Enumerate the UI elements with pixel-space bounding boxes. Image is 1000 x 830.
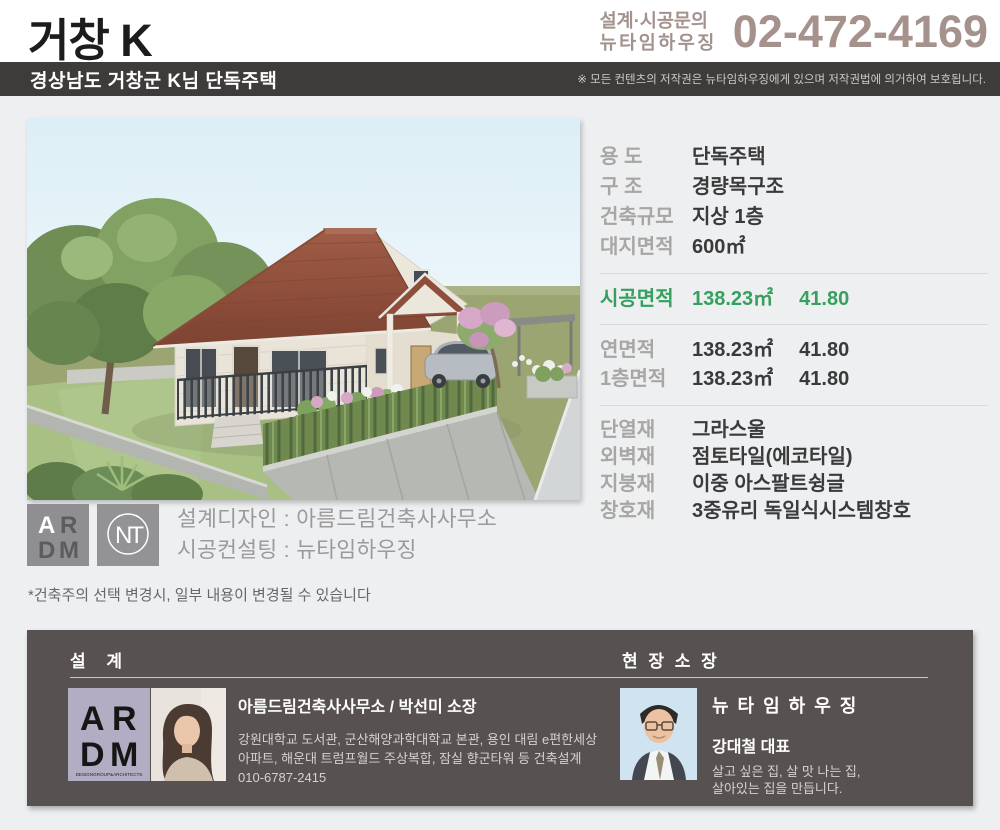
disclaimer-note: *건축주의 선택 변경시, 일부 내용이 변경될 수 있습니다 — [28, 584, 371, 605]
adm-logo-letter: D — [38, 537, 55, 564]
footer-panel: 설 계 현 장 소 장 A R D M DESIGNGROUP&ARCHITEC… — [27, 630, 973, 806]
spec-row: 용 도단독주택 — [600, 142, 988, 172]
divider — [600, 405, 988, 406]
contact-lines: 설계·시공문의 뉴타임하우징 — [600, 10, 717, 54]
page: 거창 K 설계·시공문의 뉴타임하우징 02-472-4169 경상남도 거창군… — [0, 0, 1000, 830]
adm-footer-logo: A R D M DESIGNGROUP&ARCHITECTS — [68, 688, 150, 781]
spec-label: 외벽재 — [600, 444, 692, 471]
spec-row: 1층면적138.23㎡41.80 — [600, 365, 988, 394]
spec-label: 시공면적 — [600, 285, 692, 313]
spec-label: 구 조 — [600, 172, 692, 202]
designer-text: 아름드림건축사사무소 / 박선미 소장 강원대학교 도서관, 군산해양과학대학교… — [238, 693, 608, 787]
spec-pyeong: 41.80 — [799, 336, 849, 365]
adm-logo-letter: R — [60, 512, 77, 539]
copyright-text: ※ 모든 컨텐츠의 저작권은 뉴타임하우징에게 있으며 저작권법에 의거하여 보… — [577, 71, 986, 87]
spec-value: 점토타일(에코타일) — [692, 444, 853, 471]
spec-pyeong: 41.80 — [799, 365, 849, 394]
manager-slogan-1: 살고 싶은 집, 살 맛 나는 집, — [712, 763, 962, 780]
credit-text: 설계디자인 : 아름드림건축사사무소 시공컨설팅 : 뉴타임하우징 — [177, 504, 497, 566]
credit-design-line: 설계디자인 : 아름드림건축사사무소 — [177, 504, 497, 535]
manager-text: 뉴 타 임 하 우 징 강대철 대표 살고 싶은 집, 살 맛 나는 집, 살아… — [712, 692, 962, 797]
divider — [600, 324, 988, 325]
spec-label: 1층면적 — [600, 365, 692, 394]
designer-desc-2: 아파트, 해운대 트럼프월드 주상복합, 잠실 향군타워 등 건축설계 — [238, 749, 608, 768]
designer-phone: 010-6787-2415 — [238, 768, 608, 787]
spec-label: 지붕재 — [600, 471, 692, 498]
manager-name: 강대철 대표 — [712, 733, 962, 757]
spec-materials-group: 단열재그라스울 외벽재점토타일(에코타일) 지붕재이중 아스팔트슁글 창호재3중… — [600, 417, 988, 525]
spec-value: 138.23㎡ — [692, 285, 773, 313]
spec-row: 지붕재이중 아스팔트슁글 — [600, 471, 988, 498]
section-underline — [70, 677, 928, 678]
spec-value: 단독주택 — [692, 142, 766, 172]
spec-row: 단열재그라스울 — [600, 417, 988, 444]
adm-logo-letter: R — [112, 700, 137, 738]
phone-number: 02-472-4169 — [733, 6, 988, 58]
spec-value: 이중 아스팔트슁글 — [692, 471, 845, 498]
spec-value: 3중유리 독일식시스템창호 — [692, 498, 911, 525]
contact-line-2: 뉴타임하우징 — [600, 32, 717, 54]
spec-row: 외벽재점토타일(에코타일) — [600, 444, 988, 471]
divider — [600, 273, 988, 274]
spec-value: 지상 1층 — [692, 202, 764, 232]
spec-label: 연면적 — [600, 336, 692, 365]
nt-logo: NT — [97, 504, 159, 566]
spec-row: 창호재3중유리 독일식시스템창호 — [600, 498, 988, 525]
nt-logo-monogram: NT — [115, 522, 144, 549]
spec-panel: 용 도단독주택 구 조경량목구조 건축규모지상 1층 대지면적600㎡ 시공면적… — [600, 142, 988, 525]
site-manager-heading: 현 장 소 장 — [622, 647, 720, 672]
spec-row: 건축규모지상 1층 — [600, 202, 988, 232]
spec-value: 600㎡ — [692, 232, 745, 262]
spec-pyeong: 41.80 — [799, 285, 849, 313]
adm-logo-caption: DESIGNGROUP&ARCHITECTS — [76, 772, 143, 777]
adm-logo-letter: M — [110, 736, 138, 774]
spec-basic-group: 용 도단독주택 구 조경량목구조 건축규모지상 1층 대지면적600㎡ — [600, 142, 988, 262]
house-rendering-svg — [27, 118, 580, 500]
manager-company: 뉴 타 임 하 우 징 — [712, 692, 962, 718]
house-rendering — [27, 118, 580, 500]
manager-slogan-2: 살아있는 집을 만듭니다. — [712, 780, 962, 797]
spec-value: 그라스울 — [692, 417, 766, 444]
spec-value: 138.23㎡ — [692, 336, 773, 365]
manager-slogan: 살고 싶은 집, 살 맛 나는 집, 살아있는 집을 만듭니다. — [712, 763, 962, 797]
manager-photo — [620, 688, 697, 780]
spec-row: 연면적138.23㎡41.80 — [600, 336, 988, 365]
spec-construction-group: 시공면적138.23㎡41.80 — [600, 285, 988, 313]
spec-row: 대지면적600㎡ — [600, 232, 988, 262]
designer-photo — [151, 688, 226, 781]
spec-label: 단열재 — [600, 417, 692, 444]
design-section-heading: 설 계 — [70, 647, 130, 672]
adm-logo: A R D M — [27, 504, 89, 566]
project-title: 경상남도 거창군 K님 단독주택 — [30, 66, 277, 93]
spec-label: 건축규모 — [600, 202, 692, 232]
designer-title: 아름드림건축사사무소 / 박선미 소장 — [238, 693, 608, 717]
designer-desc: 강원대학교 도서관, 군산해양과학대학교 본관, 용인 대림 e편한세상 아파트… — [238, 730, 608, 787]
project-bar: 경상남도 거창군 K님 단독주택 ※ 모든 컨텐츠의 저작권은 뉴타임하우징에게… — [0, 62, 1000, 96]
credits: A R D M NT 설계디자인 : 아름드림건축사사무소 시공컨설팅 : 뉴타… — [27, 504, 497, 566]
adm-logo-letter: M — [59, 537, 79, 564]
spec-label: 창호재 — [600, 498, 692, 525]
credit-consulting-line: 시공컨설팅 : 뉴타임하우징 — [177, 535, 497, 566]
adm-logo-letter: A — [80, 700, 105, 738]
adm-logo-letter: A — [38, 512, 55, 539]
designer-desc-1: 강원대학교 도서관, 군산해양과학대학교 본관, 용인 대림 e편한세상 — [238, 730, 608, 749]
contact-block: 설계·시공문의 뉴타임하우징 02-472-4169 — [600, 6, 988, 58]
adm-logo-letter: D — [80, 736, 105, 774]
spec-value: 경량목구조 — [692, 172, 784, 202]
spec-row: 시공면적138.23㎡41.80 — [600, 285, 988, 313]
spec-row: 구 조경량목구조 — [600, 172, 988, 202]
page-title: 거창 K — [28, 4, 152, 69]
spec-areas-group: 연면적138.23㎡41.80 1층면적138.23㎡41.80 — [600, 336, 988, 394]
contact-line-1: 설계·시공문의 — [600, 10, 717, 32]
spec-value: 138.23㎡ — [692, 365, 773, 394]
spec-label: 대지면적 — [600, 232, 692, 262]
spec-label: 용 도 — [600, 142, 692, 172]
header: 거창 K 설계·시공문의 뉴타임하우징 02-472-4169 — [0, 0, 1000, 62]
